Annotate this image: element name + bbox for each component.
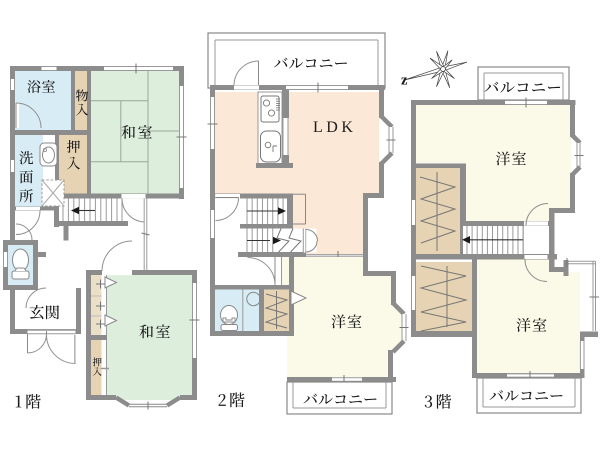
svg-text:z: z bbox=[401, 73, 408, 89]
svg-text:LDK: LDK bbox=[313, 119, 356, 136]
